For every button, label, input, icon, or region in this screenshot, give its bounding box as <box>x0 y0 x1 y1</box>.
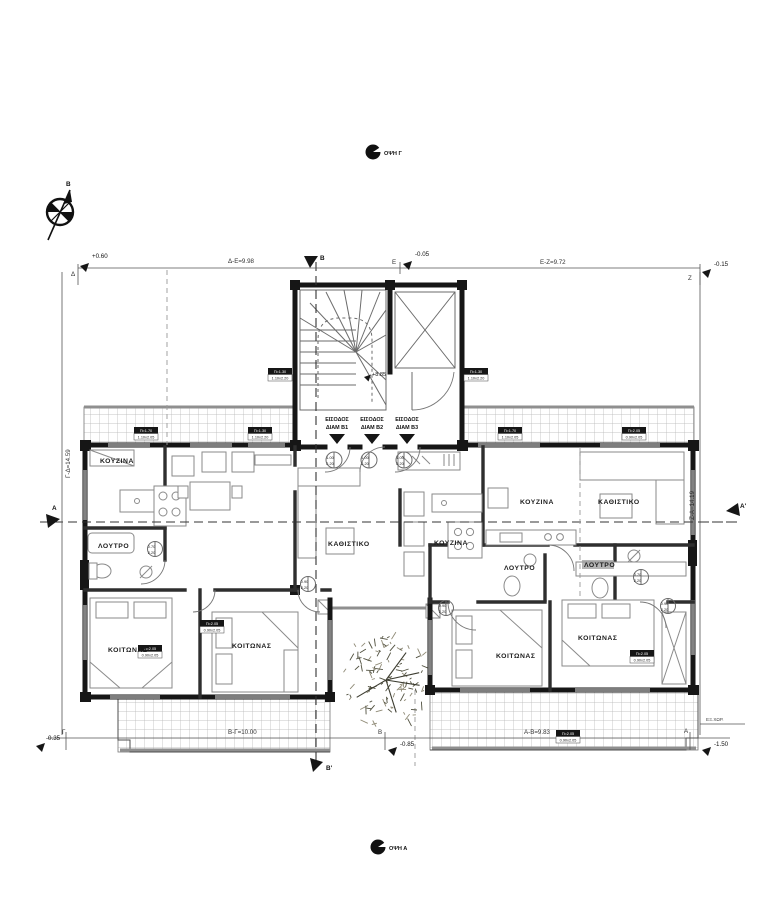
room-bedroom-b1: ΚΟΙΤΩΝΑΣ <box>108 647 148 654</box>
svg-text:Π=2.05: Π=2.05 <box>636 652 648 656</box>
window-tag-5: Π=1.70 1.10x2.05 <box>498 427 522 440</box>
svg-text:2.20: 2.20 <box>361 462 368 466</box>
svg-text:2.20: 2.20 <box>439 610 446 614</box>
svg-text:0.90: 0.90 <box>439 604 446 608</box>
offset-top-left: +0.60 <box>92 253 108 260</box>
point-beta: Β <box>378 729 382 736</box>
window-tag-3: Π=1.30 1.10x2.20 <box>268 368 292 381</box>
svg-text:2.20: 2.20 <box>661 608 668 612</box>
door-tag-bath-b3: 0.70 2.20 <box>634 570 649 585</box>
door-tag-entrance-1: 1.00 2.20 <box>326 452 342 468</box>
view-top-label: ΟΨΗ Γ <box>384 151 402 157</box>
compass-north-label: Β <box>66 181 71 188</box>
svg-text:Π=1.30: Π=1.30 <box>254 429 266 433</box>
svg-text:Π=1.30: Π=1.30 <box>274 370 286 374</box>
svg-text:Π=2.05: Π=2.05 <box>206 622 218 626</box>
entrance-b2-line1: ΕΙΣΟΔΟΣ <box>360 417 384 423</box>
compass-rose: Β <box>47 181 73 240</box>
room-kitchen-b2: ΚΟΥΖΙΝΑ <box>434 540 468 547</box>
room-living-b3: ΚΑΘΙΣΤΙΚΟ <box>598 499 640 506</box>
svg-text:0.90x2.05: 0.90x2.05 <box>634 659 651 663</box>
svg-text:Π=1.70: Π=1.70 <box>504 429 516 433</box>
window-tag-4: Π=1.30 1.10x2.20 <box>464 368 488 381</box>
bed-b1 <box>90 598 172 688</box>
svg-text:0.90x2.05: 0.90x2.05 <box>626 436 643 440</box>
room-bath-b3a: ΛΟΥΤΡΟ <box>504 565 535 572</box>
room-bath-b3b-highlight: ΛΟΥΤΡΟ <box>582 560 615 569</box>
view-bottom-label: ΟΨΗ Α <box>389 846 407 852</box>
entrance-b2-line2: ΔΙΑΜ Β2 <box>361 425 383 431</box>
door-tag-bedroom-b3a: 0.90 2.20 <box>439 601 454 616</box>
section-right-label: Α' <box>740 503 747 510</box>
svg-text:0.90: 0.90 <box>661 602 668 606</box>
svg-text:0.90: 0.90 <box>301 580 308 584</box>
svg-text:2.20: 2.20 <box>301 586 308 590</box>
door-tag-bedroom-b2: 0.90 2.20 <box>301 577 316 592</box>
svg-text:2.20: 2.20 <box>396 462 403 466</box>
bed-b3a <box>452 610 542 686</box>
span-top-left: Δ-Ε=9.98 <box>228 258 255 265</box>
furniture <box>88 447 686 692</box>
window-tag-8: Π=2.05 0.90x2.05 <box>200 620 224 633</box>
svg-text:1.10x2.05: 1.10x2.05 <box>502 436 519 440</box>
entrance-b2-arrow <box>364 434 380 444</box>
span-bottom-left: Β-Γ=10.00 <box>228 729 257 736</box>
offset-top-right: -0.15 <box>714 261 729 268</box>
entrance-b1-arrow <box>329 434 345 444</box>
entrance-b1: ΕΙΣΟΔΟΣ ΔΙΑΜ Β1 <box>325 417 349 444</box>
svg-text:2.20: 2.20 <box>326 462 333 466</box>
offset-bottom-mid: -0.85 <box>400 741 415 748</box>
bath-b1-fixtures <box>88 533 152 579</box>
svg-text:0.70: 0.70 <box>634 573 641 577</box>
svg-text:Π=1.70: Π=1.70 <box>140 429 152 433</box>
offset-bottom-right: -1.50 <box>714 741 729 748</box>
door-tag-bath-b1: 0.70 2.20 <box>148 542 163 557</box>
room-bedroom-b2: ΚΟΙΤΩΝΑΣ <box>232 643 272 650</box>
entrance-b3: ΕΙΣΟΔΟΣ ΔΙΑΜ Β3 <box>395 417 419 444</box>
svg-text:1.10x2.20: 1.10x2.20 <box>468 377 485 381</box>
view-marker-bottom: ΟΨΗ Α <box>371 840 408 855</box>
offset-top-mid: -0.05 <box>415 251 430 258</box>
svg-text:0.90x2.05: 0.90x2.05 <box>204 629 221 633</box>
bed-b3b <box>562 600 686 684</box>
bed-b2 <box>212 612 298 692</box>
room-kitchen-b1: ΚΟΥΖΙΝΑ <box>100 458 134 465</box>
window-tag-9: Π=2.05 0.90x2.05 <box>630 650 654 663</box>
svg-text:0.90x2.05: 0.90x2.05 <box>560 739 577 743</box>
level-marker: +8.85 <box>364 372 386 382</box>
span-right: Ζ-Α=14.19 <box>689 490 696 520</box>
exterior-note: ΕΞ.ΧΩΡ. <box>706 717 724 722</box>
svg-text:1.00: 1.00 <box>326 456 333 460</box>
room-bath-b3b: ΛΟΥΤΡΟ <box>584 562 615 569</box>
balcony-bottom-left <box>118 697 330 752</box>
point-delta: Δ <box>71 271 75 278</box>
svg-text:1.10x2.20: 1.10x2.20 <box>272 377 289 381</box>
svg-text:1.00: 1.00 <box>396 456 403 460</box>
room-bedroom-b3b: ΚΟΙΤΩΝΑΣ <box>578 635 618 642</box>
entrance-b3-line2: ΔΙΑΜ Β3 <box>396 425 418 431</box>
svg-text:Π=2.05: Π=2.05 <box>628 429 640 433</box>
balcony-top-right <box>462 407 694 445</box>
point-gamma: Γ <box>62 729 66 736</box>
room-living-b2: ΚΑΘΙΣΤΙΚΟ <box>328 541 370 548</box>
span-top-right: Ε-Ζ=9.72 <box>540 259 566 266</box>
door-tag-bedroom-b3b: 0.90 2.20 <box>661 599 676 614</box>
room-bedroom-b3a: ΚΟΙΤΩΝΑΣ <box>496 653 536 660</box>
level-label: +8.85 <box>372 372 386 378</box>
span-left: Γ-Δ=14.59 <box>65 449 72 478</box>
svg-text:0.90x2.05: 0.90x2.05 <box>142 654 159 658</box>
window-tag-6: Π=2.05 0.90x2.05 <box>622 427 646 440</box>
kitchen-b3-units <box>486 488 576 545</box>
entrance-b1-line2: ΔΙΑΜ Β1 <box>326 425 348 431</box>
view-marker-top: ΟΨΗ Γ <box>366 145 403 160</box>
courtyard <box>318 600 440 618</box>
floor-plan-drawing: +8.85 <box>0 0 768 916</box>
living-b1-furniture <box>172 452 291 510</box>
entrance-b1-line1: ΕΙΣΟΔΟΣ <box>325 417 349 423</box>
point-zeta: Ζ <box>688 275 692 282</box>
svg-text:Π=2.05: Π=2.05 <box>562 732 574 736</box>
svg-text:1.10x2.05: 1.10x2.05 <box>138 436 155 440</box>
entrance-b2: ΕΙΣΟΔΟΣ ΔΙΑΜ Β2 <box>360 417 384 444</box>
svg-text:0.70: 0.70 <box>148 545 155 549</box>
svg-text:2.20: 2.20 <box>634 579 641 583</box>
entrance-b3-arrow <box>399 434 415 444</box>
offset-bottom-left: -0.35 <box>46 735 61 742</box>
span-bottom-right: Α-Β=9.83 <box>524 729 551 736</box>
kitchen-b2-units <box>398 452 482 576</box>
window-tag-2: Π=1.30 1.10x2.20 <box>248 427 272 440</box>
section-top-label: Β <box>320 255 325 262</box>
entrance-b3-line1: ΕΙΣΟΔΟΣ <box>395 417 419 423</box>
room-kitchen-b3: ΚΟΥΖΙΝΑ <box>520 499 554 506</box>
svg-text:1.10x2.20: 1.10x2.20 <box>252 436 269 440</box>
room-bath-b1: ΛΟΥΤΡΟ <box>98 543 129 550</box>
svg-text:Π=1.30: Π=1.30 <box>470 370 482 374</box>
svg-text:1.00: 1.00 <box>361 456 368 460</box>
window-tag-10: Π=2.05 0.90x2.05 <box>556 730 580 743</box>
point-epsilon: Ε <box>392 259 396 266</box>
svg-text:2.20: 2.20 <box>148 551 155 555</box>
section-bottom-label: Β' <box>326 765 333 772</box>
section-left-label: Α <box>52 505 57 512</box>
floor-plan-page: +8.85 <box>0 0 768 916</box>
window-tag-1: Π=1.70 1.10x2.05 <box>134 427 158 440</box>
